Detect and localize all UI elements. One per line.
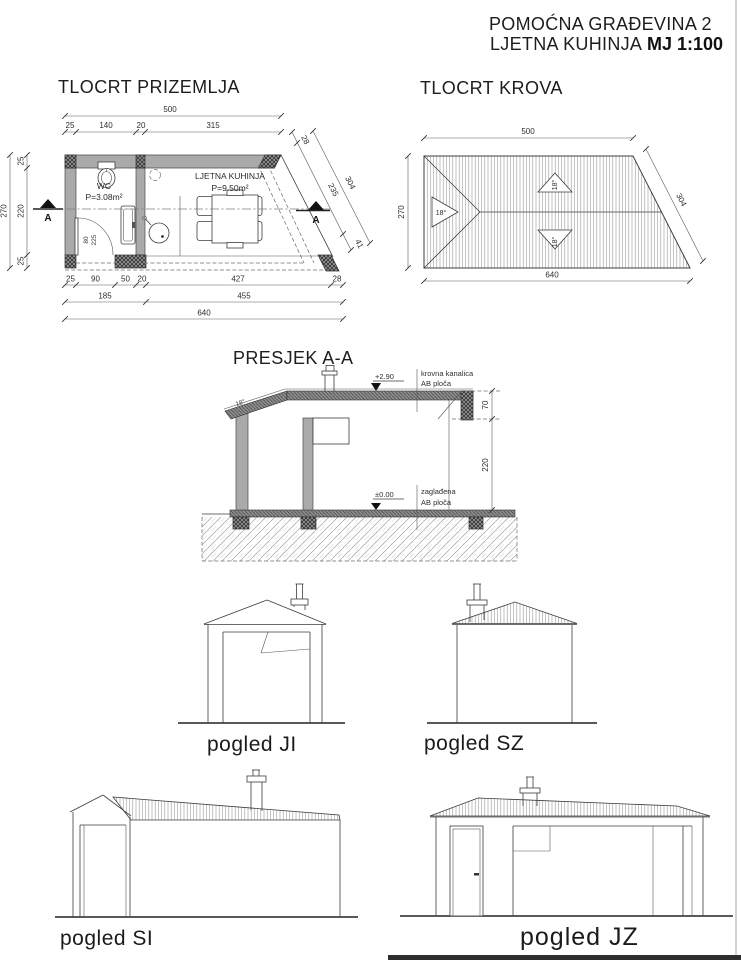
dim: 28: [299, 134, 311, 147]
section-roof: 18°: [224, 389, 473, 420]
opening: [223, 632, 310, 723]
dim: 304: [343, 175, 357, 191]
door-height-label: 225: [91, 234, 98, 245]
roof-label-2: AB ploča: [421, 379, 452, 388]
dim: 304: [674, 192, 688, 208]
level-value: ±0.00: [375, 490, 394, 499]
floor-plan-title: TLOCRT PRIZEMLJA: [58, 77, 240, 97]
section-left-wall: [236, 413, 248, 510]
dim: 25: [66, 121, 75, 130]
drawing-sheet: POMOĆNA GRAĐEVINA 2 LJETNA KUHINJA MJ 1:…: [0, 0, 741, 960]
elevation-sz: pogled SZ: [424, 584, 597, 755]
elevation-jz-label: pogled JZ: [520, 923, 639, 951]
elevation-si: pogled SI: [55, 770, 358, 950]
roof-label-1: krovna kanalica: [421, 369, 474, 378]
chair: [197, 197, 214, 216]
slope-label: 18°: [436, 209, 447, 217]
dim: 270: [0, 204, 9, 218]
faucet: [132, 222, 136, 228]
elevation-sz-label: pogled SZ: [424, 732, 524, 755]
long-roof: [113, 797, 340, 820]
page-edge-bottom: [388, 955, 741, 960]
section-marker-right: A: [312, 215, 319, 226]
roof-plan: TLOCRT KROVA 18° 18° 18° 500 270 640 304: [397, 78, 706, 284]
room-area-kitchen: P=9.50m²: [211, 183, 248, 193]
dim: 185: [98, 292, 112, 301]
dim: 640: [545, 271, 559, 280]
dim: 25: [17, 256, 26, 265]
drawing-scale: MJ 1:100: [647, 34, 723, 54]
door-width-label: 80: [83, 236, 90, 244]
corner-column: [318, 255, 339, 271]
washbasin: [121, 206, 136, 244]
room-area-wc: P=3.08m²: [85, 192, 122, 202]
section-a-a: PRESJEK A-A 18°: [202, 348, 517, 561]
section-interior-box: [313, 418, 349, 444]
architectural-drawing: POMOĆNA GRAĐEVINA 2 LJETNA KUHINJA MJ 1:…: [0, 0, 741, 960]
dim: 427: [231, 275, 245, 284]
chimney: [291, 584, 308, 610]
project-title: POMOĆNA GRAĐEVINA 2: [489, 13, 712, 34]
floor-label-1: zaglađena: [421, 487, 456, 496]
dim: 25: [17, 156, 26, 165]
dim: 640: [197, 309, 211, 318]
dining-set: [197, 190, 262, 248]
elevation-jz: pogled JZ: [400, 777, 733, 951]
level-marker-floor: ±0.00: [371, 490, 404, 510]
dim: 500: [521, 127, 535, 136]
opening: [80, 825, 126, 917]
dim: 70: [481, 400, 490, 409]
room-label-wc: WC: [97, 181, 111, 191]
dim: 20: [138, 275, 147, 284]
room-label-kitchen: LJETNA KUHINJA: [195, 171, 265, 181]
section-chimney: [322, 366, 337, 392]
dim: 28: [333, 275, 342, 284]
title-block: POMOĆNA GRAĐEVINA 2 LJETNA KUHINJA MJ 1:…: [489, 13, 723, 54]
slope-label: 18°: [551, 237, 559, 248]
dim: 90: [91, 275, 100, 284]
dim: 315: [206, 121, 220, 130]
section-mid-wall: [303, 418, 313, 510]
dim: 235: [326, 182, 340, 198]
chimney: [247, 770, 266, 811]
opening: [513, 826, 692, 916]
door-handle: [474, 873, 479, 876]
elevation-si-label: pogled SI: [60, 927, 153, 950]
level-value: +2.90: [375, 372, 394, 381]
table: [212, 195, 258, 243]
door: 80 225: [75, 218, 113, 255]
dim: 455: [237, 292, 251, 301]
floor-plan: TLOCRT PRIZEMLJA 80: [0, 77, 373, 322]
ceiling-opening: [150, 170, 161, 181]
project-subtitle: LJETNA KUHINJA: [490, 34, 642, 54]
slope-label: 18°: [551, 180, 559, 191]
section-dimensions: 70 220: [452, 388, 500, 513]
dim: 270: [397, 205, 406, 219]
roof-plan-title: TLOCRT KROVA: [420, 78, 563, 98]
dim: 20: [137, 121, 146, 130]
dim: 500: [163, 105, 177, 114]
dim: 25: [66, 275, 75, 284]
round-sink: [143, 216, 170, 243]
section-marker-left: A: [44, 213, 51, 224]
dim: 220: [17, 204, 26, 218]
floor-label-2: AB ploča: [421, 498, 452, 507]
floor-slab: [230, 510, 515, 517]
hip-roof: [430, 798, 710, 816]
elevation-ji: pogled JI: [178, 584, 345, 756]
level-marker-roof: +2.90: [371, 372, 404, 391]
section-title: PRESJEK A-A: [233, 348, 353, 368]
dim: 220: [481, 458, 490, 472]
elevation-ji-label: pogled JI: [207, 733, 297, 756]
dim: 41: [353, 238, 365, 251]
dim: 50: [121, 275, 130, 284]
floor-plan-dimensions: 500 25 140 20 315 270 25 220 25 25 90 50…: [0, 105, 373, 322]
dim: 140: [99, 121, 113, 130]
chair: [197, 222, 214, 241]
entrance-door: [450, 826, 483, 916]
